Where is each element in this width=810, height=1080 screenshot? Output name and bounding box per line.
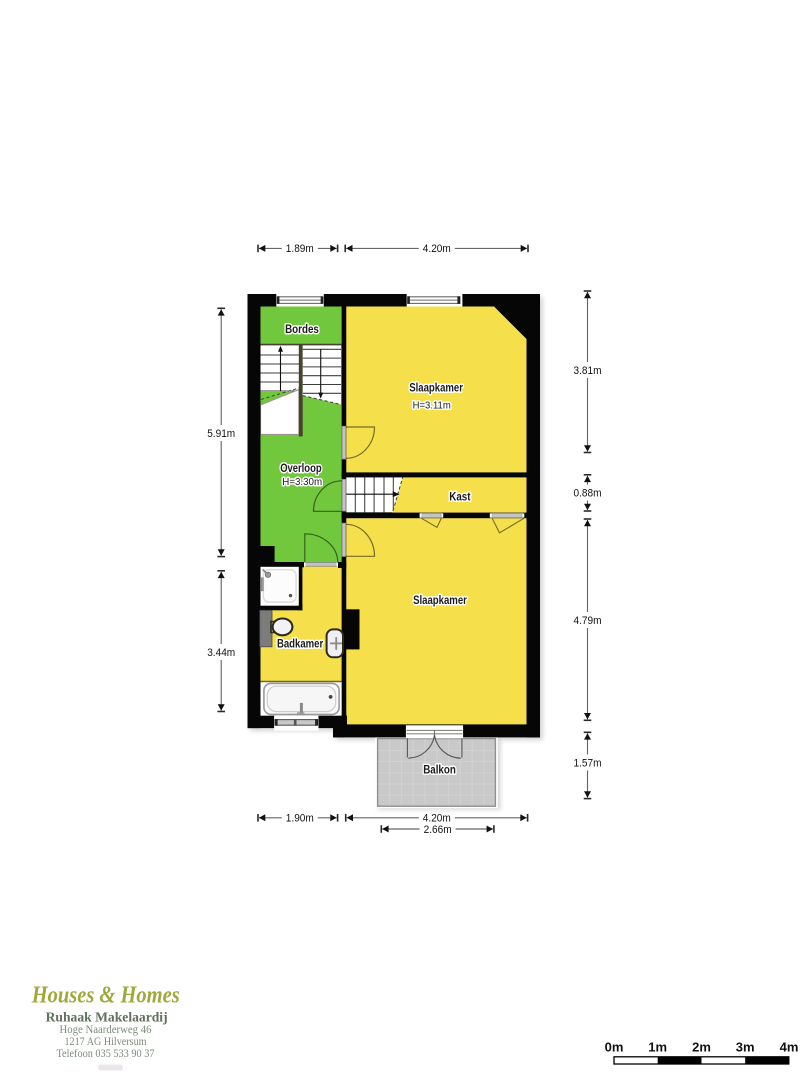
- svg-text:Houses & Homes: Houses & Homes: [31, 983, 180, 1009]
- svg-text:4.79m: 4.79m: [574, 615, 602, 627]
- svg-text:3m: 3m: [736, 1040, 755, 1055]
- svg-text:0m: 0m: [605, 1040, 624, 1055]
- svg-text:H=3.30m: H=3.30m: [282, 477, 322, 488]
- svg-text:5.91m: 5.91m: [207, 428, 235, 440]
- svg-text:4.20m: 4.20m: [423, 243, 451, 255]
- svg-text:Hoge Naarderweg 46: Hoge Naarderweg 46: [60, 1024, 152, 1036]
- svg-text:Slaapkamer: Slaapkamer: [413, 593, 467, 607]
- svg-text:H=3.11m: H=3.11m: [413, 401, 451, 412]
- svg-text:2.66m: 2.66m: [424, 824, 452, 836]
- svg-text:Telefoon 035 533 90 37: Telefoon 035 533 90 37: [57, 1048, 155, 1060]
- svg-text:1.89m: 1.89m: [286, 243, 314, 255]
- svg-text:3.81m: 3.81m: [574, 365, 602, 377]
- svg-text:3.44m: 3.44m: [207, 647, 235, 659]
- svg-text:1.57m: 1.57m: [574, 757, 602, 769]
- svg-text:4.20m: 4.20m: [423, 813, 451, 825]
- svg-text:Overloop: Overloop: [280, 463, 321, 475]
- svg-text:1m: 1m: [648, 1040, 667, 1055]
- svg-text:2m: 2m: [692, 1040, 711, 1055]
- svg-text:Balkon: Balkon: [423, 765, 456, 777]
- svg-text:1217 AG Hilversum: 1217 AG Hilversum: [65, 1036, 147, 1048]
- svg-text:Ruhaak Makelaardij: Ruhaak Makelaardij: [46, 1010, 168, 1025]
- svg-text:1.90m: 1.90m: [286, 813, 314, 825]
- svg-text:Slaapkamer: Slaapkamer: [409, 380, 463, 394]
- svg-text:4m: 4m: [780, 1040, 799, 1055]
- svg-text:Bordes: Bordes: [285, 324, 319, 336]
- svg-text:Badkamer: Badkamer: [277, 639, 324, 651]
- svg-text:0.88m: 0.88m: [574, 487, 602, 499]
- svg-text:Kast: Kast: [449, 492, 470, 504]
